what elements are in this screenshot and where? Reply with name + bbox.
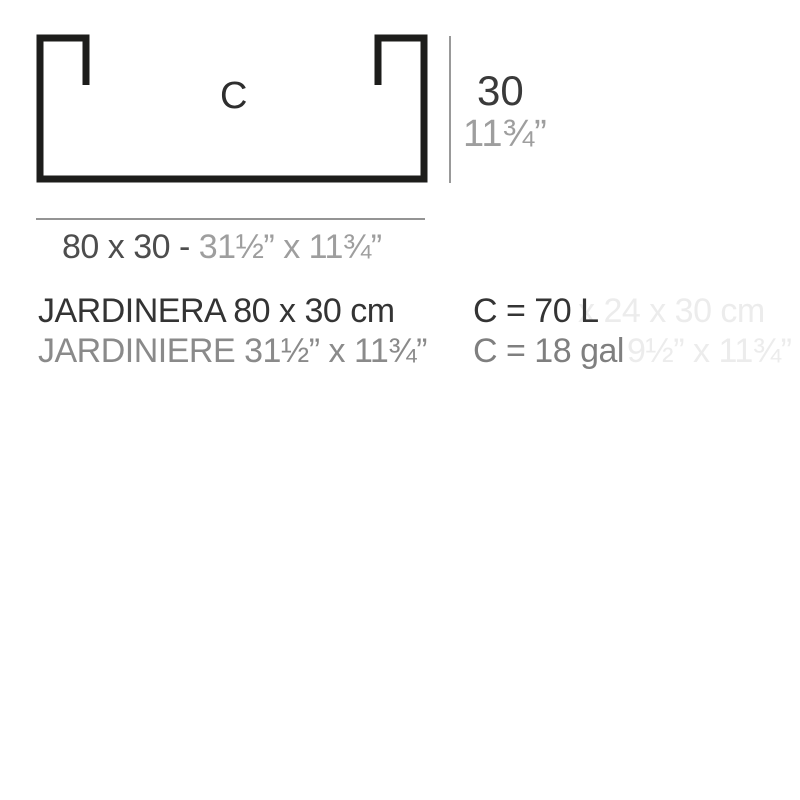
ghost-text-line1: x 24 x 30 cm: [578, 294, 765, 328]
product-name-french: JARDINIERE 31½” x 11¾”: [38, 334, 427, 368]
width-value-imperial: 31½” x 11¾”: [199, 228, 382, 266]
profile-letter-c: C: [220, 77, 248, 115]
width-value-metric: 80 x 30 -: [62, 228, 199, 266]
ghost-text-line2: 9½” x 11¾”: [627, 334, 791, 368]
spec-sheet-page: C 30 11¾” 80 x 30 - 31½” x 11¾” JARDINER…: [0, 0, 800, 800]
product-name-spanish: JARDINERA 80 x 30 cm: [38, 294, 395, 328]
capacity-liters: C = 70 L: [473, 294, 598, 328]
width-dimension-rule: [36, 218, 425, 220]
height-value-cm: 30: [477, 70, 524, 112]
height-value-inches: 11¾”: [463, 115, 547, 153]
width-dimension-label: 80 x 30 - 31½” x 11¾”: [62, 230, 382, 264]
capacity-gallons: C = 18 gal: [473, 334, 624, 368]
height-dimension-line: [449, 36, 451, 183]
